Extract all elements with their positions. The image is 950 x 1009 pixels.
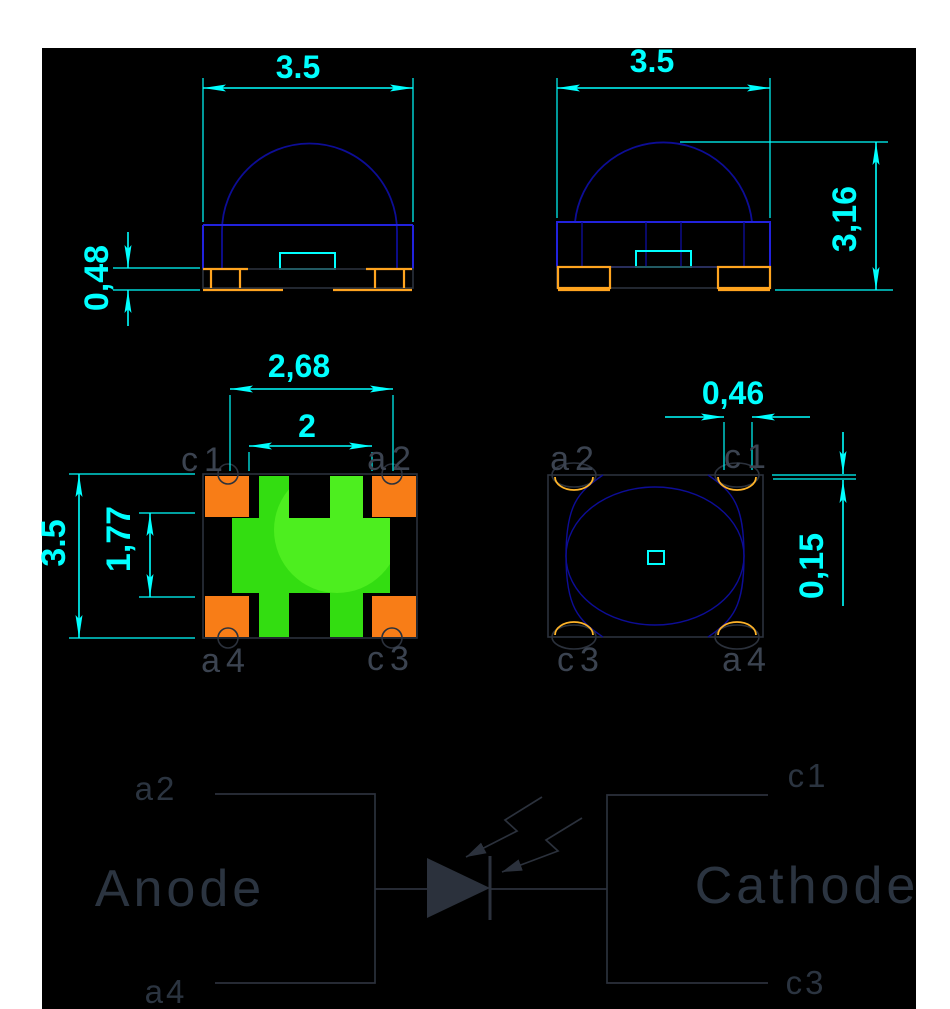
schematic-pin-a2: a2	[135, 770, 178, 807]
cad-drawing-canvas: 3.5 0,48 3.5	[0, 0, 950, 1009]
pad-height-dimension-text: 0,48	[78, 245, 116, 311]
pin-label-a4: a4	[201, 642, 251, 680]
green-contact	[259, 592, 289, 637]
schematic-pin-c3: c3	[786, 964, 827, 1001]
inner-pitch-dimension-text: 2	[298, 408, 316, 444]
schematic-pin-a4: a4	[145, 973, 188, 1009]
pin-label-c3: c3	[557, 641, 605, 679]
height-dimension-text: 3,16	[826, 186, 864, 252]
offset-dimension-text: 0,15	[793, 533, 831, 599]
notch-dimension-text: 0,46	[702, 375, 764, 411]
schematic-pin-c1: c1	[788, 757, 829, 794]
pin-label-a2: a2	[367, 440, 417, 478]
corner-pad-c1	[205, 476, 249, 517]
pin-label-a4: a4	[722, 641, 772, 679]
corner-pad-c3	[372, 596, 416, 637]
pin-label-c1: c1	[181, 441, 229, 479]
width-dimension-text: 3.5	[276, 49, 320, 85]
center-dimension-text: 1,77	[100, 506, 138, 572]
width-dimension-text: 3.5	[630, 43, 674, 79]
body-dimension-text: 3.5	[35, 519, 73, 566]
led-datasheet-drawing: 3.5 0,48 3.5	[0, 0, 950, 1009]
pin-label-c1: c1	[724, 438, 772, 476]
cathode-label: Cathode	[695, 857, 920, 915]
green-contact	[330, 592, 363, 637]
corner-pad-a2	[372, 476, 416, 517]
corner-pad-a4	[205, 596, 249, 637]
outer-pitch-dimension-text: 2,68	[268, 348, 330, 384]
pin-label-a2: a2	[550, 440, 600, 478]
pin-label-c3: c3	[367, 640, 415, 678]
anode-label: Anode	[95, 860, 265, 918]
